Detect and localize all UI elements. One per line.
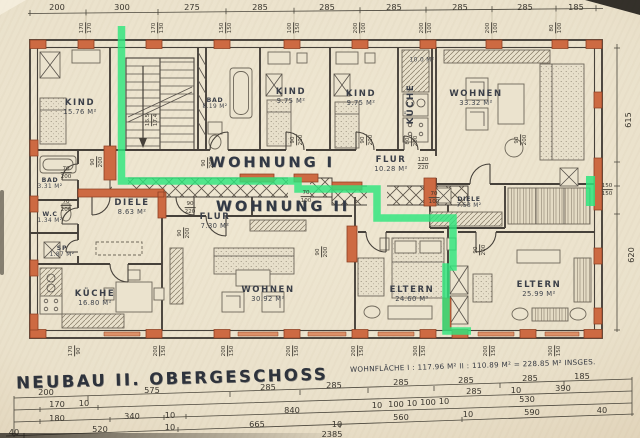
dim-label: 10 <box>439 396 449 406</box>
dim-label: 590 <box>524 407 540 417</box>
room-label: ELTERN24.60 M² <box>390 286 435 304</box>
dim-label: 285 <box>319 2 335 12</box>
dim-label: 40 <box>597 405 607 415</box>
room-label: ELTERN25.99 M² <box>517 281 562 299</box>
dim-label: 10 <box>463 409 473 419</box>
dim-label: 285 <box>522 373 538 383</box>
window-door-dim: 150150 <box>602 183 613 197</box>
room-label: KIND9.75 M² <box>346 90 376 108</box>
dim-label: 620 <box>626 247 636 263</box>
dim-label: 170 <box>49 399 65 409</box>
room-label: KIND9.75 M² <box>276 88 306 106</box>
window-door-dim: 200100 <box>353 23 367 34</box>
dim-label: 10 <box>165 422 175 432</box>
room-label: SP1.87 M² <box>50 245 75 259</box>
window-door-dim: 90200 <box>290 135 304 146</box>
window-door-dim: 17090 <box>68 346 82 357</box>
dim-label: 285 <box>386 2 402 12</box>
window-door-dim: 200100 <box>419 23 433 34</box>
window-door-dim: 120220 <box>418 157 429 171</box>
window-door-dim: 70200 <box>61 166 72 180</box>
window-door-dim: 170170 <box>79 23 93 34</box>
dim-label: 275 <box>184 2 200 12</box>
room-label: WOHNEN30.92 M² <box>241 286 294 304</box>
dim-label: 10 <box>79 398 89 408</box>
dim-label: 390 <box>555 383 571 393</box>
dim-label: 530 <box>519 394 535 404</box>
room-label: FLUR7.30 M² <box>200 213 231 231</box>
dim-label: 10 <box>407 398 417 408</box>
room-label: KÜCHE <box>407 84 417 125</box>
dim-label: 100 <box>388 399 404 409</box>
window-door-dim: 150150 <box>219 23 233 34</box>
dim-label: 285 <box>393 377 409 387</box>
window-door-dim: 200150 <box>351 346 365 357</box>
window-door-dim: 16.517.4 <box>145 114 159 126</box>
window-door-dim: 200150 <box>221 346 235 357</box>
room-label: KÜCHE16.80 M² <box>75 290 116 308</box>
dim-label: 200 <box>49 2 65 12</box>
dim-label: 560 <box>393 412 409 422</box>
window-door-dim: 200100 <box>485 23 499 34</box>
window-door-dim: 200150 <box>286 346 300 357</box>
window-door-dim: 90200 <box>473 245 487 256</box>
dim-label: 285 <box>517 2 533 12</box>
dim-label: 285 <box>466 386 482 396</box>
window-door-dim: 70200 <box>61 199 72 213</box>
room-label: BAD3.31 M² <box>38 177 63 191</box>
window-door-dim: 90200 <box>360 135 374 146</box>
window-door-dim: 90200 <box>514 135 528 146</box>
dim-label: 285 <box>458 375 474 385</box>
window-door-dim: 300150 <box>413 346 427 357</box>
dim-label: 10 <box>165 410 175 420</box>
room-label: DIELE8.63 M² <box>114 199 149 217</box>
dim-label: 340 <box>124 411 140 421</box>
window-door-dim: 200150 <box>483 346 497 357</box>
window-door-dim: 70100 <box>301 190 312 204</box>
window-door-dim: 80100 <box>549 23 563 34</box>
photo-edge-left <box>0 190 4 275</box>
dim-label: 10 <box>372 400 382 410</box>
dim-label: 665 <box>249 419 265 429</box>
dim-label: 10 <box>332 419 342 429</box>
window-door-dim: 90200 <box>90 157 104 168</box>
window-door-dim: 80200 <box>405 136 419 147</box>
photo-edge-bottom <box>0 433 352 438</box>
dim-label: 300 <box>114 2 130 12</box>
window-door-dim: 170130 <box>151 23 165 34</box>
room-label: FLUR10.28 M² <box>374 156 407 174</box>
apartment-label: WOHNUNG II <box>216 199 350 215</box>
dim-label: 615 <box>623 112 633 128</box>
window-door-dim: 200150 <box>153 346 167 357</box>
window-door-dim: 90200 <box>201 158 215 169</box>
dim-label: 285 <box>252 2 268 12</box>
apartment-label: WOHNUNG I <box>209 155 335 171</box>
window-door-dim: 90220 <box>185 201 196 215</box>
room-label: W.C1.34 M² <box>38 211 63 225</box>
room-label: KIND15.76 M² <box>63 99 96 117</box>
dim-label: 100 <box>420 397 436 407</box>
dim-label: 285 <box>452 2 468 12</box>
room-label: 10.0 M² <box>410 58 435 65</box>
window-door-dim: 90200 <box>315 247 329 258</box>
room-label: DIELE7.58 M² <box>457 196 482 210</box>
scanned-floor-plan: KIND15.76 M²BAD8.19 M²KIND9.75 M²KIND9.7… <box>0 0 640 438</box>
dim-label: 185 <box>568 2 584 12</box>
window-door-dim: 70100 <box>429 191 440 205</box>
window-door-dim: 90200 <box>177 228 191 239</box>
window-door-dim: 100150 <box>287 23 301 34</box>
dim-label: 840 <box>284 405 300 415</box>
photo-edge-top-right <box>585 0 640 15</box>
window-door-dim: 300150 <box>548 346 562 357</box>
room-label: BAD8.19 M² <box>203 97 228 111</box>
dim-label: 180 <box>49 413 65 423</box>
room-label: WOHNEN33.32 M² <box>449 90 502 108</box>
dim-label: 285 <box>326 380 342 390</box>
dim-label: 185 <box>574 371 590 381</box>
